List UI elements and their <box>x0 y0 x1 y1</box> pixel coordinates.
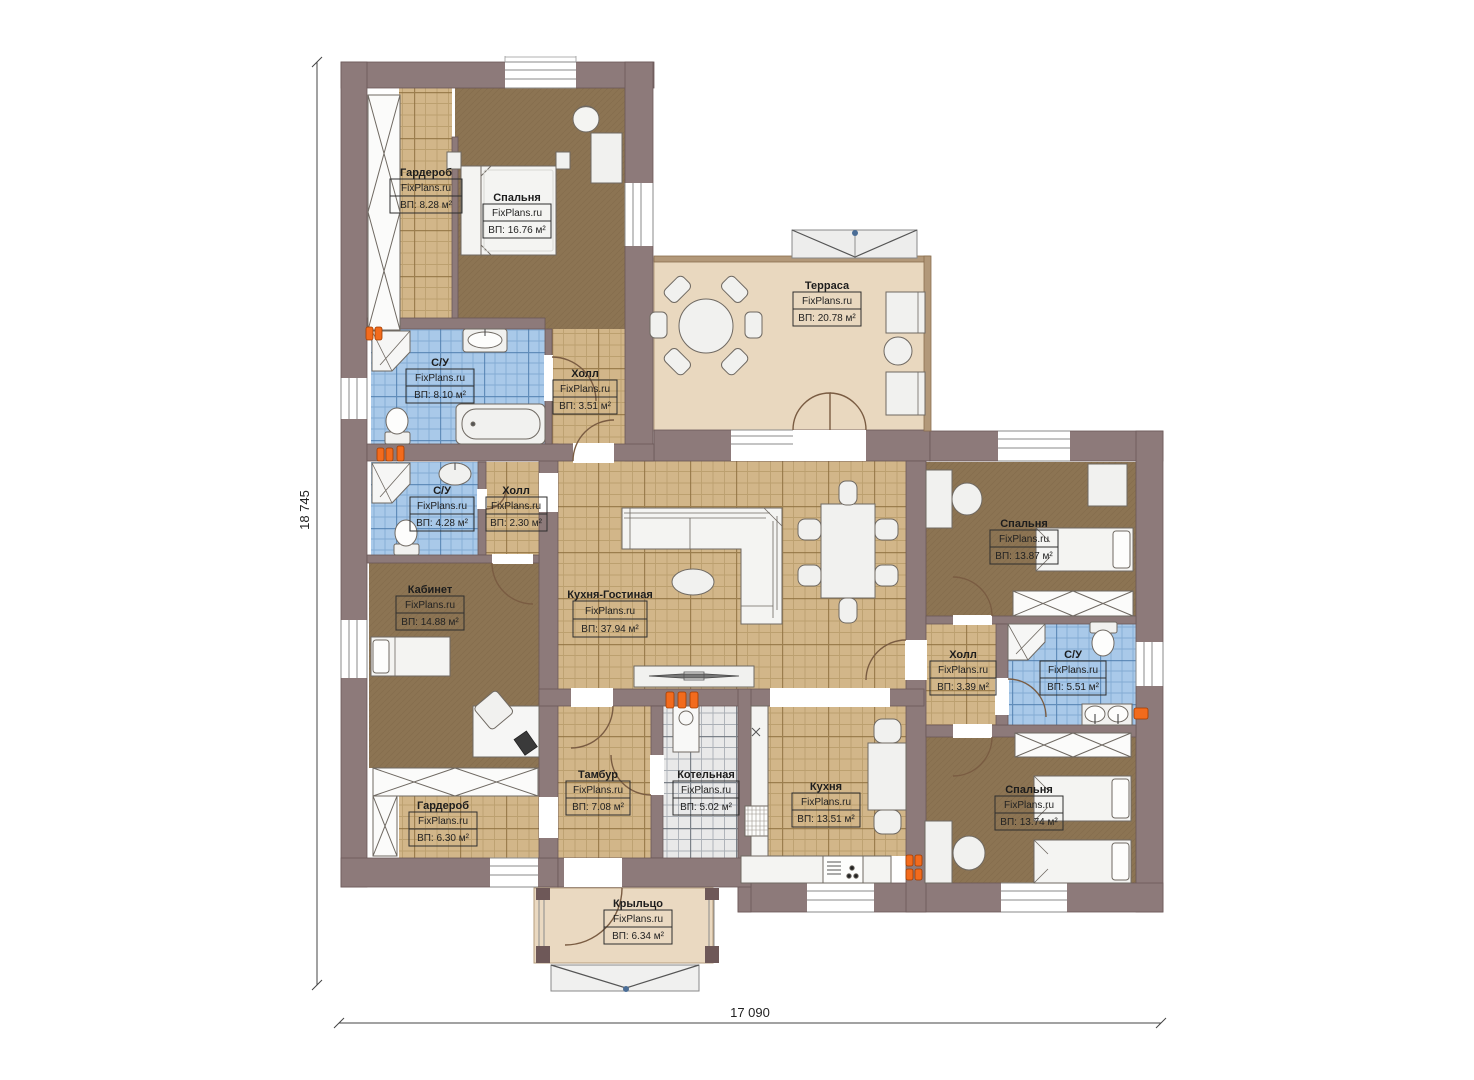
svg-text:Холл: Холл <box>571 368 599 380</box>
svg-text:FixPlans.ru: FixPlans.ru <box>681 785 731 796</box>
svg-text:ВП: 8.10 м²: ВП: 8.10 м² <box>414 390 467 401</box>
svg-text:С/У: С/У <box>1064 649 1082 661</box>
svg-text:FixPlans.ru: FixPlans.ru <box>938 665 988 676</box>
svg-text:FixPlans.ru: FixPlans.ru <box>415 373 465 384</box>
svg-text:FixPlans.ru: FixPlans.ru <box>401 183 451 194</box>
svg-text:18 745: 18 745 <box>297 490 312 530</box>
svg-text:Гардероб: Гардероб <box>400 167 452 179</box>
svg-text:FixPlans.ru: FixPlans.ru <box>418 816 468 827</box>
svg-text:Кухня: Кухня <box>810 781 842 793</box>
svg-text:ВП: 13.51 м²: ВП: 13.51 м² <box>797 814 855 825</box>
svg-text:Спальня: Спальня <box>1005 784 1053 796</box>
svg-text:ВП: 3.51 м²: ВП: 3.51 м² <box>559 401 612 412</box>
svg-text:ВП: 6.34 м²: ВП: 6.34 м² <box>612 931 665 942</box>
svg-text:ВП: 2.30 м²: ВП: 2.30 м² <box>490 518 543 529</box>
svg-text:ВП: 14.88 м²: ВП: 14.88 м² <box>401 617 459 628</box>
svg-text:Гардероб: Гардероб <box>417 800 469 812</box>
svg-text:FixPlans.ru: FixPlans.ru <box>573 785 623 796</box>
svg-text:ВП: 37.94 м²: ВП: 37.94 м² <box>581 624 639 635</box>
svg-text:FixPlans.ru: FixPlans.ru <box>802 296 852 307</box>
svg-text:FixPlans.ru: FixPlans.ru <box>613 914 663 925</box>
svg-text:Тамбур: Тамбур <box>578 769 618 781</box>
svg-text:FixPlans.ru: FixPlans.ru <box>492 208 542 219</box>
svg-text:FixPlans.ru: FixPlans.ru <box>585 606 635 617</box>
svg-text:ВП: 13.87 м²: ВП: 13.87 м² <box>995 551 1053 562</box>
svg-text:С/У: С/У <box>431 357 449 369</box>
svg-text:Спальня: Спальня <box>1000 518 1048 530</box>
svg-text:ВП: 7.08 м²: ВП: 7.08 м² <box>572 802 625 813</box>
svg-text:FixPlans.ru: FixPlans.ru <box>1048 665 1098 676</box>
svg-text:Холл: Холл <box>949 649 977 661</box>
svg-text:С/У: С/У <box>433 485 451 497</box>
svg-text:ВП: 3.39 м²: ВП: 3.39 м² <box>937 682 990 693</box>
svg-text:ВП: 5.51 м²: ВП: 5.51 м² <box>1047 682 1100 693</box>
svg-text:ВП: 20.78 м²: ВП: 20.78 м² <box>798 313 856 324</box>
svg-text:Кухня-Гостиная: Кухня-Гостиная <box>567 589 653 601</box>
svg-text:FixPlans.ru: FixPlans.ru <box>417 501 467 512</box>
svg-text:ВП: 6.30 м²: ВП: 6.30 м² <box>417 833 470 844</box>
svg-text:FixPlans.ru: FixPlans.ru <box>1004 800 1054 811</box>
svg-text:Кабинет: Кабинет <box>408 584 453 596</box>
svg-text:Холл: Холл <box>502 485 530 497</box>
svg-text:ВП: 5.02 м²: ВП: 5.02 м² <box>680 802 733 813</box>
svg-text:Спальня: Спальня <box>493 192 541 204</box>
svg-text:FixPlans.ru: FixPlans.ru <box>405 600 455 611</box>
svg-text:ВП: 13.74 м²: ВП: 13.74 м² <box>1000 817 1058 828</box>
svg-text:FixPlans.ru: FixPlans.ru <box>999 534 1049 545</box>
svg-text:Котельная: Котельная <box>677 769 735 781</box>
svg-text:Терраса: Терраса <box>805 280 850 292</box>
svg-text:17 090: 17 090 <box>730 1005 770 1020</box>
svg-text:ВП: 16.76 м²: ВП: 16.76 м² <box>488 225 546 236</box>
svg-text:ВП: 4.28 м²: ВП: 4.28 м² <box>416 518 469 529</box>
svg-text:FixPlans.ru: FixPlans.ru <box>801 797 851 808</box>
svg-text:FixPlans.ru: FixPlans.ru <box>560 384 610 395</box>
svg-text:Крыльцо: Крыльцо <box>613 898 663 910</box>
svg-text:ВП: 8.28 м²: ВП: 8.28 м² <box>400 200 453 211</box>
svg-text:FixPlans.ru: FixPlans.ru <box>491 501 541 512</box>
